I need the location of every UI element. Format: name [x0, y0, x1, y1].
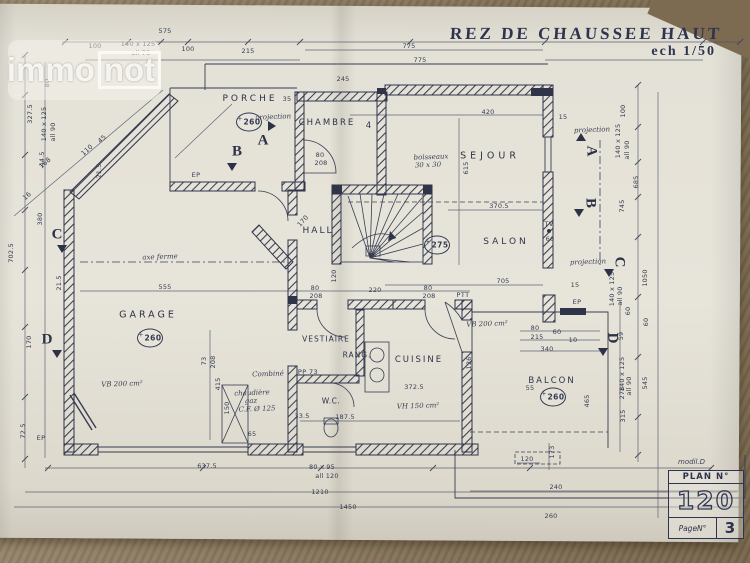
level-value: 260	[243, 118, 260, 127]
dimension-label: 775	[402, 42, 415, 50]
section-arrow-icon	[268, 121, 276, 131]
handwritten-annotation: 30 x 30	[415, 161, 441, 170]
level-value: 275	[431, 241, 448, 250]
dimension-label: all 120	[315, 472, 338, 480]
dimension-label: 220	[368, 286, 381, 294]
model-note: modil.D	[678, 458, 705, 466]
dimension-label: all 90	[623, 140, 631, 159]
section-arrow-icon	[52, 350, 62, 358]
section-letter: A	[583, 146, 600, 157]
dimension-label: 187.5	[335, 413, 355, 421]
section-letter: C	[611, 257, 628, 268]
dimension-label: 140 x 125	[40, 107, 48, 142]
dimension-label: 208	[309, 292, 322, 300]
dimension-label: 60	[624, 307, 632, 316]
dimension-label: all 90	[616, 286, 624, 305]
dimension-label: 65	[248, 430, 257, 438]
dimension-label: 278	[618, 386, 626, 399]
section-arrow-icon	[604, 269, 614, 277]
watermark-not: not	[98, 51, 161, 88]
section-letter: C	[52, 227, 63, 244]
level-marker: +260	[540, 388, 566, 407]
annotation-label: PP 73	[298, 368, 318, 376]
dimension-label: 685	[632, 175, 640, 188]
scale-text: ech 1/50	[450, 44, 716, 60]
room-label: VESTIAIRE	[302, 335, 350, 344]
dimension-label: 100	[181, 45, 194, 53]
room-label: W.C.	[322, 397, 341, 406]
section-letter: D	[42, 332, 53, 349]
room-label: RANG.	[343, 351, 372, 360]
dimension-label: 140 x 125	[614, 124, 622, 159]
handwritten-annotation: VB 200 cm²	[466, 319, 508, 328]
dimension-label: 73	[200, 357, 208, 366]
dimension-label: 100	[619, 104, 627, 117]
handwritten-annotation: VH 150 cm²	[397, 401, 440, 410]
dimension-label: 110	[79, 143, 94, 158]
dimension-label: 33.5	[294, 412, 309, 420]
dimension-label: 72.5	[19, 423, 27, 438]
dimension-label: 1050	[641, 269, 649, 286]
dimension-label: 575	[158, 27, 171, 35]
page-label: PageN°	[669, 518, 717, 538]
dimension-label: 80	[316, 151, 325, 159]
page-number: 3	[717, 518, 743, 538]
dimension-label: 702.5	[7, 243, 15, 263]
dimension-label: 120	[330, 269, 338, 282]
dimension-label: 80 x 95	[309, 463, 335, 471]
section-arrow-icon	[598, 348, 608, 356]
dimension-label: 327.5	[26, 104, 34, 124]
dimension-label: 80	[424, 284, 433, 292]
dimension-label: 415	[214, 377, 222, 390]
level-plus: +	[541, 391, 546, 398]
dimension-label: 35	[283, 95, 292, 103]
dimension-label: 1450	[339, 503, 356, 511]
dimension-label: 380	[36, 212, 44, 225]
dimension-label: 60	[546, 235, 555, 243]
handwritten-annotation: projection	[570, 257, 606, 266]
dimension-label: 215	[530, 333, 543, 341]
handwritten-annotation: VB 200 cm²	[101, 379, 143, 388]
dimension-label: 705	[496, 277, 509, 285]
level-plus: +	[138, 332, 143, 339]
dimension-label: all 90	[49, 122, 57, 141]
dimension-label: 126	[465, 356, 473, 369]
dimension-label: 15	[571, 281, 580, 289]
level-marker: +260	[236, 113, 262, 132]
section-letter: B	[232, 144, 242, 161]
dimension-label: 150	[223, 401, 231, 414]
dimension-label: 465	[583, 394, 591, 407]
dimension-label: 775	[413, 56, 426, 64]
dimension-label: 615	[462, 161, 470, 174]
plan-number: 120	[669, 484, 743, 518]
dimension-label: 173	[548, 445, 556, 458]
level-plus: +	[425, 239, 430, 246]
room-label: HALL	[303, 226, 334, 236]
dimension-label: 372.5	[404, 383, 424, 391]
annotation-label: EP	[573, 298, 582, 306]
dimension-label: 208	[209, 355, 217, 368]
dimension-label: 555	[158, 283, 171, 291]
annotation-label: EP	[37, 434, 46, 442]
photo-of-floor-plan: PORCHECHAMBRE4SEJOURHALLSALONGARAGEVESTI…	[0, 0, 750, 563]
drawing-title: REZ DE CHAUSSEE HAUT ech 1/50	[450, 24, 722, 60]
dimension-label: 340	[540, 345, 553, 353]
room-label: CUISINE	[395, 355, 443, 365]
annotation-label: EP	[192, 171, 201, 179]
dimension-label: 80	[311, 284, 320, 292]
dimension-label: 45	[96, 133, 108, 145]
annotation-label: PTT	[457, 291, 470, 299]
dimension-label: 260	[544, 512, 557, 520]
title-block: PLAN N° 120 PageN° 3	[668, 470, 744, 539]
title-text: REZ DE CHAUSSEE HAUT	[449, 24, 722, 44]
dimension-label: 1210	[311, 488, 328, 496]
section-letter: A	[258, 133, 269, 150]
level-plus: +	[237, 116, 242, 123]
dimension-label: 420	[481, 108, 494, 116]
room-label: PORCHE	[222, 94, 277, 104]
dimension-label: 120	[520, 455, 533, 463]
dimension-label: 637.5	[197, 462, 217, 470]
room-label: GARAGE	[119, 310, 177, 321]
section-arrow-icon	[576, 133, 586, 141]
section-letter: B	[582, 198, 599, 208]
handwritten-annotation: axe ferme	[142, 252, 178, 261]
dimension-label: 10	[569, 336, 578, 344]
dimension-label: 245	[336, 75, 349, 83]
level-value: 260	[547, 393, 564, 402]
dimension-label: 60	[553, 328, 562, 336]
dimension-label: 545	[641, 376, 649, 389]
dimension-label: 240	[549, 483, 562, 491]
dimension-label: 370.5	[489, 202, 509, 210]
dimension-label: 80	[531, 324, 540, 332]
dimension-label: 208	[422, 292, 435, 300]
dimension-label: all 90	[625, 376, 633, 395]
room-label: CHAMBRE	[299, 118, 356, 128]
level-value: 260	[144, 334, 161, 343]
dimension-label: 21.5	[55, 275, 63, 290]
dimension-label: 315	[619, 409, 627, 422]
dimension-label: 745	[618, 199, 626, 212]
dimension-label: 170	[25, 335, 33, 348]
room-label: SEJOUR	[460, 151, 520, 162]
room-label: SALON	[483, 237, 529, 247]
dimension-label: 208	[314, 159, 327, 167]
dimension-label: 215	[241, 47, 254, 55]
room-label: BALCON	[528, 376, 575, 386]
room-label: 4	[366, 121, 374, 131]
annotation-label: TV	[544, 220, 553, 228]
level-marker: +260	[137, 329, 163, 348]
handwritten-annotation: C.F. Ø 125	[238, 404, 275, 413]
immonot-watermark: immo not	[8, 40, 160, 100]
plan-number-label: PLAN N°	[669, 471, 743, 484]
section-arrow-icon	[57, 245, 67, 253]
watermark-immo: immo	[7, 51, 95, 89]
level-marker: +275	[424, 236, 450, 255]
dimension-label: 21.5	[95, 163, 103, 178]
handwritten-annotation: Combiné	[252, 369, 284, 378]
dimension-label: 16	[21, 190, 33, 202]
section-arrow-icon	[227, 163, 237, 171]
dimension-label: 60	[642, 318, 650, 327]
dimension-label: 15	[559, 113, 568, 121]
dimension-label: 55	[526, 384, 535, 392]
section-arrow-icon	[574, 209, 584, 217]
handwritten-annotation: gaz	[245, 397, 258, 405]
section-letter: D	[604, 333, 621, 344]
